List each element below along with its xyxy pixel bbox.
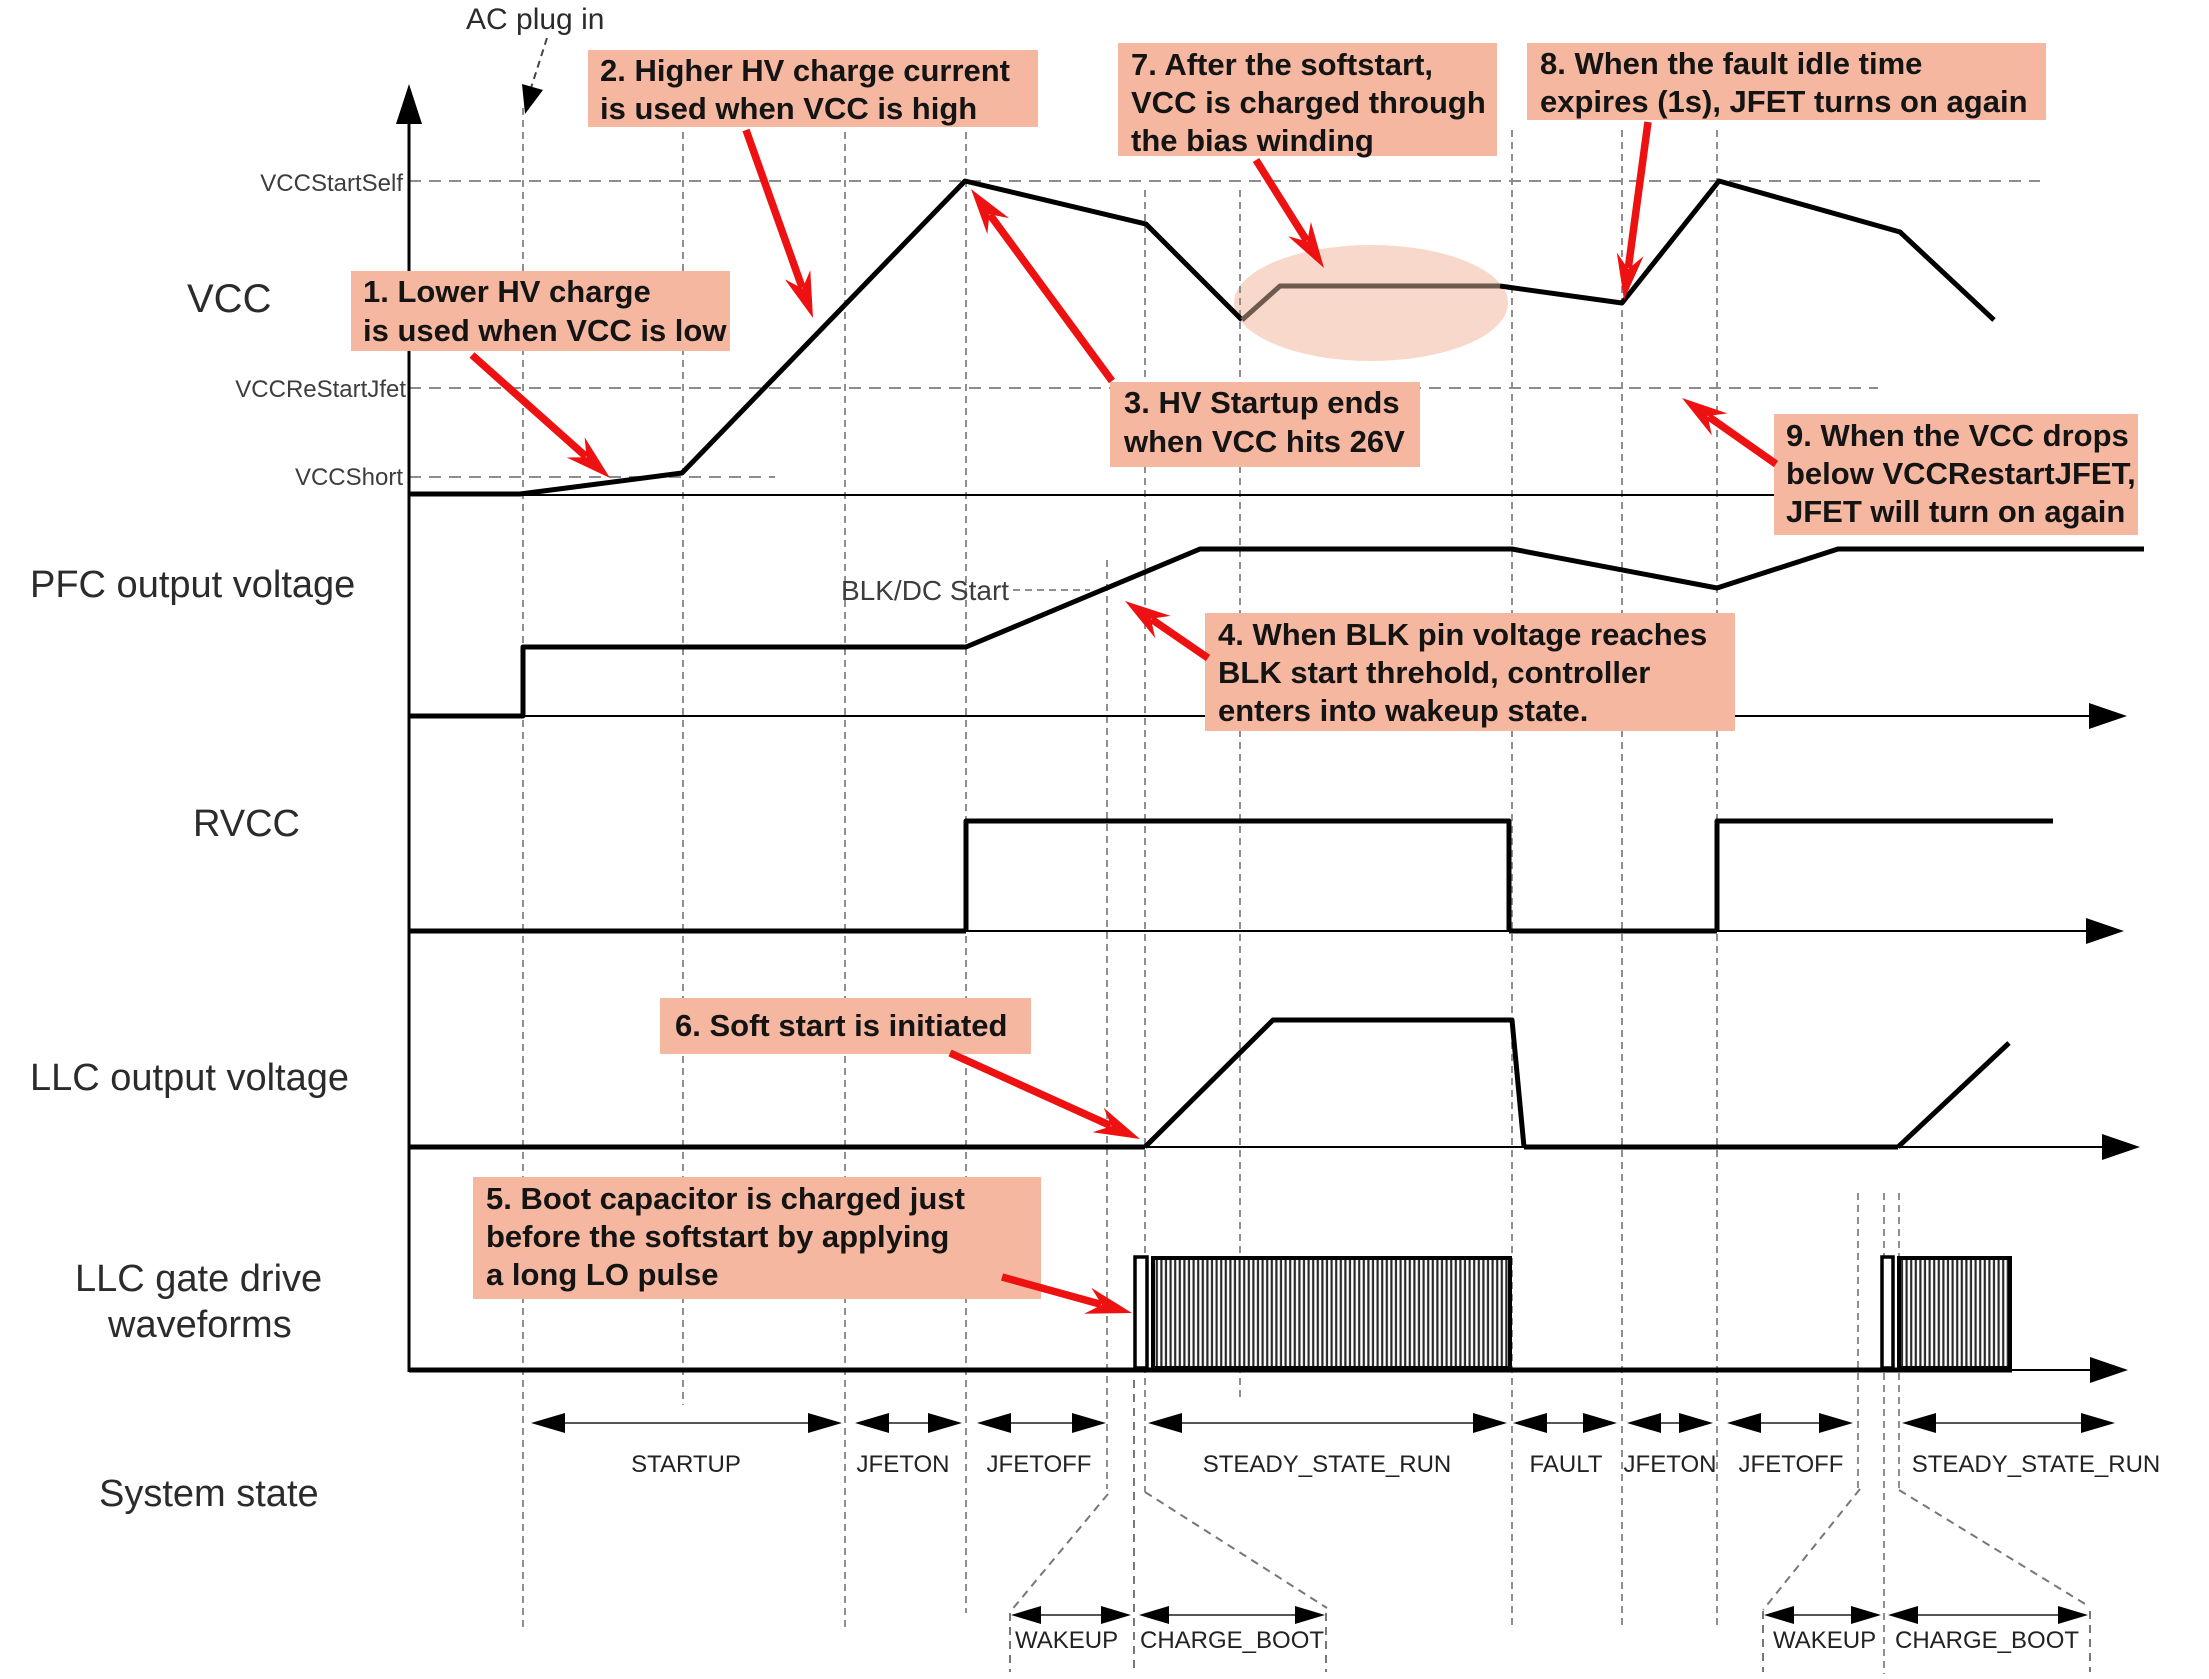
svg-text:4. When BLK pin voltage reache: 4. When BLK pin voltage reaches [1218,617,1707,652]
svg-text:PFC output voltage: PFC output voltage [30,564,355,606]
svg-text:JFETOFF: JFETOFF [1739,1451,1844,1478]
svg-text:STEADY_STATE_RUN: STEADY_STATE_RUN [1203,1451,1452,1478]
svg-text:8. When the fault idle time: 8. When the fault idle time [1540,46,1922,81]
svg-text:STEADY_STATE_RUN: STEADY_STATE_RUN [1912,1451,2161,1478]
svg-text:a long LO pulse: a long LO pulse [486,1257,719,1292]
svg-text:WAKEUP: WAKEUP [1015,1627,1118,1654]
svg-text:AC plug in: AC plug in [466,3,604,36]
svg-text:when VCC hits 26V: when VCC hits 26V [1123,424,1405,459]
svg-text:VCC: VCC [187,277,271,321]
svg-text:JFETOFF: JFETOFF [987,1451,1092,1478]
svg-text:before the softstart by applyi: before the softstart by applying [486,1219,949,1254]
svg-text:JFETON: JFETON [857,1451,950,1478]
svg-text:VCCShort: VCCShort [295,464,403,491]
svg-text:below VCCRestartJFET,: below VCCRestartJFET, [1786,456,2136,491]
svg-text:is used when VCC is high: is used when VCC is high [600,91,977,126]
svg-text:3. HV Startup ends: 3. HV Startup ends [1124,385,1400,420]
svg-text:6. Soft start is initiated: 6. Soft start is initiated [675,1008,1007,1043]
svg-text:5. Boot capacitor is charged j: 5. Boot capacitor is charged just [486,1181,965,1216]
svg-text:LLC gate drive: LLC gate drive [75,1258,322,1300]
svg-text:CHARGE_BOOT: CHARGE_BOOT [1140,1627,1324,1654]
svg-text:9. When the VCC drops: 9. When the VCC drops [1786,418,2129,453]
svg-text:VCCReStartJfet: VCCReStartJfet [235,376,406,403]
svg-text:LLC output voltage: LLC output voltage [30,1057,349,1099]
svg-text:VCC is charged through: VCC is charged through [1131,85,1486,120]
svg-text:enters into wakeup state.: enters into wakeup state. [1218,693,1588,728]
svg-text:the bias winding: the bias winding [1131,123,1374,158]
svg-text:FAULT: FAULT [1530,1451,1603,1478]
svg-text:VCCStartSelf: VCCStartSelf [260,170,403,197]
svg-text:CHARGE_BOOT: CHARGE_BOOT [1895,1627,2079,1654]
svg-text:System state: System state [99,1473,319,1515]
svg-text:is used when VCC is low: is used when VCC is low [363,313,727,348]
svg-text:JFET will turn on again: JFET will turn on again [1786,494,2125,529]
svg-text:BLK start threhold, controller: BLK start threhold, controller [1218,655,1650,690]
svg-text:2. Higher HV charge current: 2. Higher HV charge current [600,53,1010,88]
svg-text:WAKEUP: WAKEUP [1773,1627,1876,1654]
svg-text:JFETON: JFETON [1624,1451,1717,1478]
svg-text:waveforms: waveforms [107,1304,292,1346]
svg-text:1. Lower HV charge: 1. Lower HV charge [363,274,651,309]
svg-text:BLK/DC Start: BLK/DC Start [841,575,1009,606]
svg-text:STARTUP: STARTUP [631,1451,741,1478]
svg-text:RVCC: RVCC [193,803,300,845]
svg-text:7. After the softstart,: 7. After the softstart, [1131,47,1433,82]
svg-text:expires (1s), JFET turns on ag: expires (1s), JFET turns on again [1540,84,2028,119]
